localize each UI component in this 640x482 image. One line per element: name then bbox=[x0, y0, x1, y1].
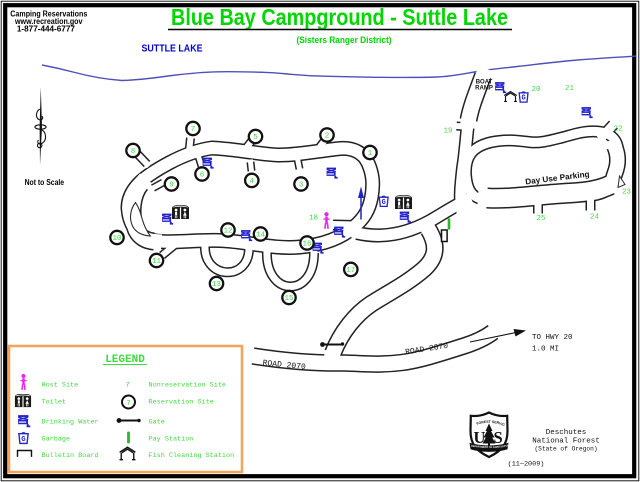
svg-text:Blue Bay Campground - Suttle L: Blue Bay Campground - Suttle Lake bbox=[171, 4, 508, 30]
svg-text:S: S bbox=[494, 428, 503, 447]
svg-text:Pay Station: Pay Station bbox=[149, 436, 194, 444]
svg-text:7: 7 bbox=[191, 126, 196, 134]
svg-text:17: 17 bbox=[346, 267, 355, 275]
svg-text:Gate: Gate bbox=[149, 419, 165, 427]
svg-text:G: G bbox=[21, 436, 26, 444]
svg-text:National Forest: National Forest bbox=[532, 438, 600, 446]
svg-text:G: G bbox=[521, 95, 525, 103]
svg-text:2: 2 bbox=[325, 133, 330, 141]
svg-text:Reservation Site: Reservation Site bbox=[149, 399, 214, 407]
svg-text:(11—2009): (11—2009) bbox=[508, 461, 545, 469]
svg-text:12: 12 bbox=[223, 228, 232, 236]
svg-text:5: 5 bbox=[253, 134, 258, 142]
svg-text:19: 19 bbox=[443, 128, 452, 136]
svg-text:23: 23 bbox=[622, 189, 632, 197]
svg-text:Not to Scale: Not to Scale bbox=[25, 178, 65, 187]
svg-text:11: 11 bbox=[152, 258, 162, 266]
svg-text:3: 3 bbox=[299, 182, 304, 190]
svg-text:8: 8 bbox=[131, 148, 136, 156]
svg-text:24: 24 bbox=[590, 214, 600, 222]
svg-text:Garbage: Garbage bbox=[42, 436, 71, 444]
svg-text:Fish Cleaning Station: Fish Cleaning Station bbox=[149, 452, 235, 460]
svg-text:SUTTLE LAKE: SUTTLE LAKE bbox=[142, 43, 203, 55]
svg-text:9: 9 bbox=[169, 182, 174, 190]
svg-text:(State of Oregon): (State of Oregon) bbox=[534, 446, 597, 453]
svg-text:18: 18 bbox=[309, 215, 318, 223]
svg-text:Host Site: Host Site bbox=[42, 382, 79, 390]
svg-text:21: 21 bbox=[565, 85, 575, 93]
svg-text:G: G bbox=[382, 199, 386, 207]
svg-text:1.0 MI: 1.0 MI bbox=[532, 346, 559, 354]
svg-text:Nonreservation Site: Nonreservation Site bbox=[149, 382, 227, 390]
svg-text:Bulletin Board: Bulletin Board bbox=[42, 452, 99, 460]
svg-text:Drinking Water: Drinking Water bbox=[42, 419, 99, 427]
svg-text:15: 15 bbox=[284, 295, 294, 303]
svg-text:1-877-444-6777: 1-877-444-6777 bbox=[17, 25, 76, 34]
svg-text:16: 16 bbox=[302, 241, 312, 249]
svg-text:6: 6 bbox=[200, 172, 205, 180]
svg-text:7: 7 bbox=[126, 382, 130, 390]
svg-text:10: 10 bbox=[112, 235, 122, 243]
svg-text:7: 7 bbox=[126, 400, 130, 408]
svg-text:(Sisters Ranger District): (Sisters Ranger District) bbox=[297, 35, 392, 45]
svg-text:25: 25 bbox=[536, 215, 546, 223]
svg-text:4: 4 bbox=[250, 178, 255, 186]
svg-text:TO HWY 20: TO HWY 20 bbox=[532, 334, 573, 342]
svg-text:1: 1 bbox=[368, 150, 373, 158]
svg-text:20: 20 bbox=[531, 86, 541, 94]
svg-text:RAMP: RAMP bbox=[475, 86, 493, 92]
svg-text:22: 22 bbox=[613, 126, 622, 134]
svg-text:Deschutes: Deschutes bbox=[546, 429, 587, 437]
svg-text:14: 14 bbox=[256, 232, 266, 240]
svg-text:13: 13 bbox=[212, 281, 222, 289]
svg-text:Toilet: Toilet bbox=[42, 399, 66, 407]
